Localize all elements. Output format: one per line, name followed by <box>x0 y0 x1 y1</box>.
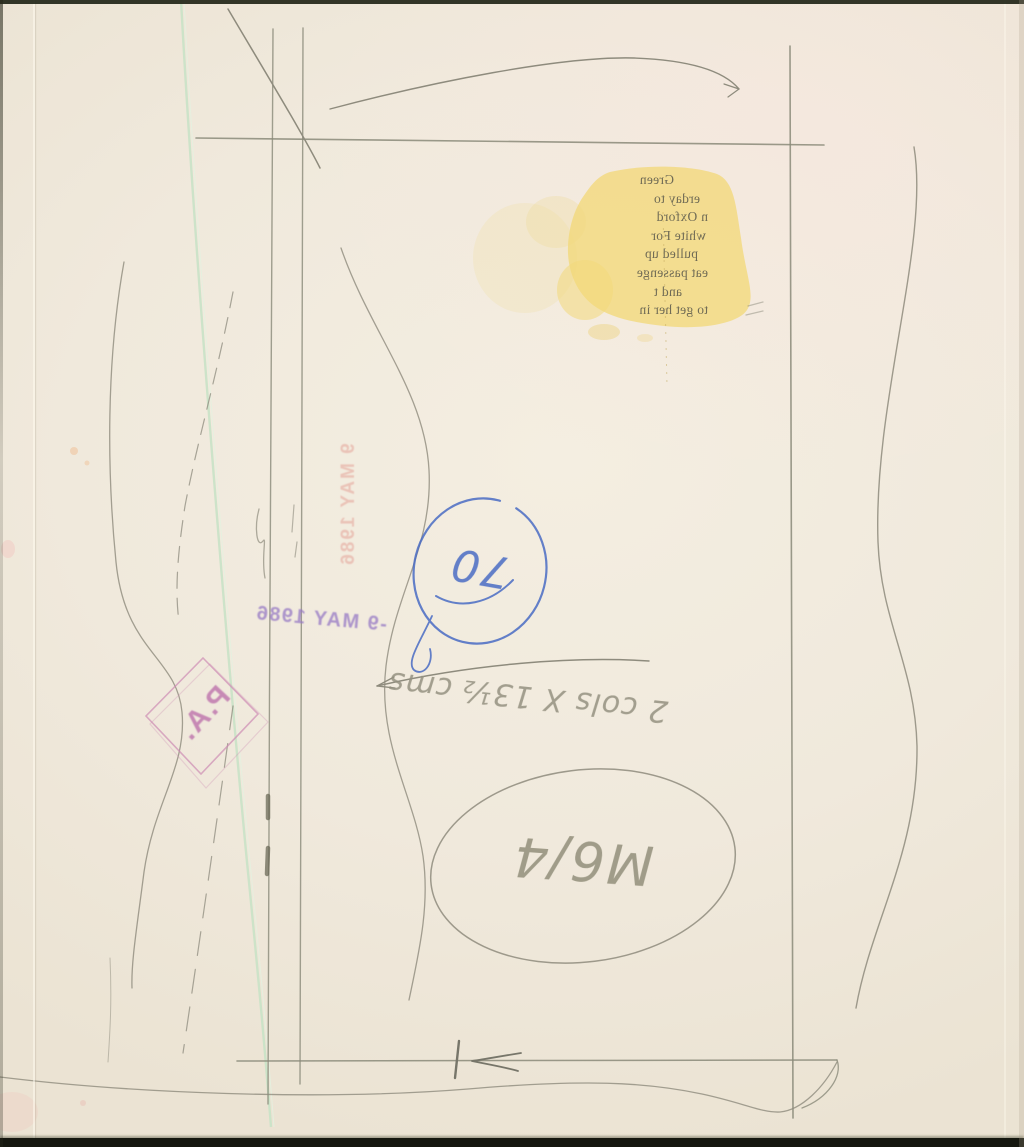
paper-blemishes <box>0 447 90 1132</box>
photo-edge-right <box>1019 0 1024 1147</box>
paper-crease-left <box>33 0 35 1147</box>
photo-edge-bottom <box>0 1138 1024 1147</box>
newsprint-line: and t <box>556 283 708 302</box>
left-faint-line <box>108 958 111 1062</box>
newsprint-line: eat passenge <box>556 264 708 283</box>
paper-crease-right <box>1004 0 1006 1147</box>
photo-edge-top <box>0 0 1024 4</box>
right-s-curve <box>856 147 917 1008</box>
photo-edge-left <box>0 0 3 1147</box>
crop-mark-left-outer <box>300 28 303 1084</box>
bottom-wavy-line <box>0 1062 837 1112</box>
newsprint-line: n Oxford <box>556 208 708 227</box>
crop-mark-bottom <box>237 1060 837 1061</box>
newsprint-line: erday to <box>556 190 708 209</box>
newsprint-showthrough: Green erday to n Oxford white For pulled… <box>556 171 708 323</box>
crop-mark-right <box>790 46 793 1118</box>
dark-smudges <box>267 796 268 874</box>
date-stamp-red: 9 MAY 1986 <box>334 425 364 585</box>
newsprint-line: pulled up <box>556 245 708 264</box>
crop-mark-left-inner <box>268 29 273 1104</box>
newsprint-line: Green <box>556 171 708 190</box>
reference-code-annotation: M6/4 <box>465 806 701 914</box>
crop-mark-bottom-hook <box>802 1060 838 1108</box>
photo-verso: Green erday to n Oxford white For pulled… <box>0 0 1024 1147</box>
bottom-tick-mark <box>455 1041 459 1078</box>
top-sweep-line <box>330 58 739 109</box>
green-grease-line-echo <box>184 0 274 1127</box>
left-outer-curve <box>110 262 183 988</box>
top-left-diagonal <box>228 9 320 168</box>
small-squiggle-1 <box>256 509 265 578</box>
left-arrowhead <box>472 1053 521 1071</box>
newsprint-line: to get her in <box>556 301 708 320</box>
crop-mark-top <box>196 138 824 145</box>
newsprint-line: white For <box>556 227 708 246</box>
small-squiggle-2 <box>292 505 297 557</box>
